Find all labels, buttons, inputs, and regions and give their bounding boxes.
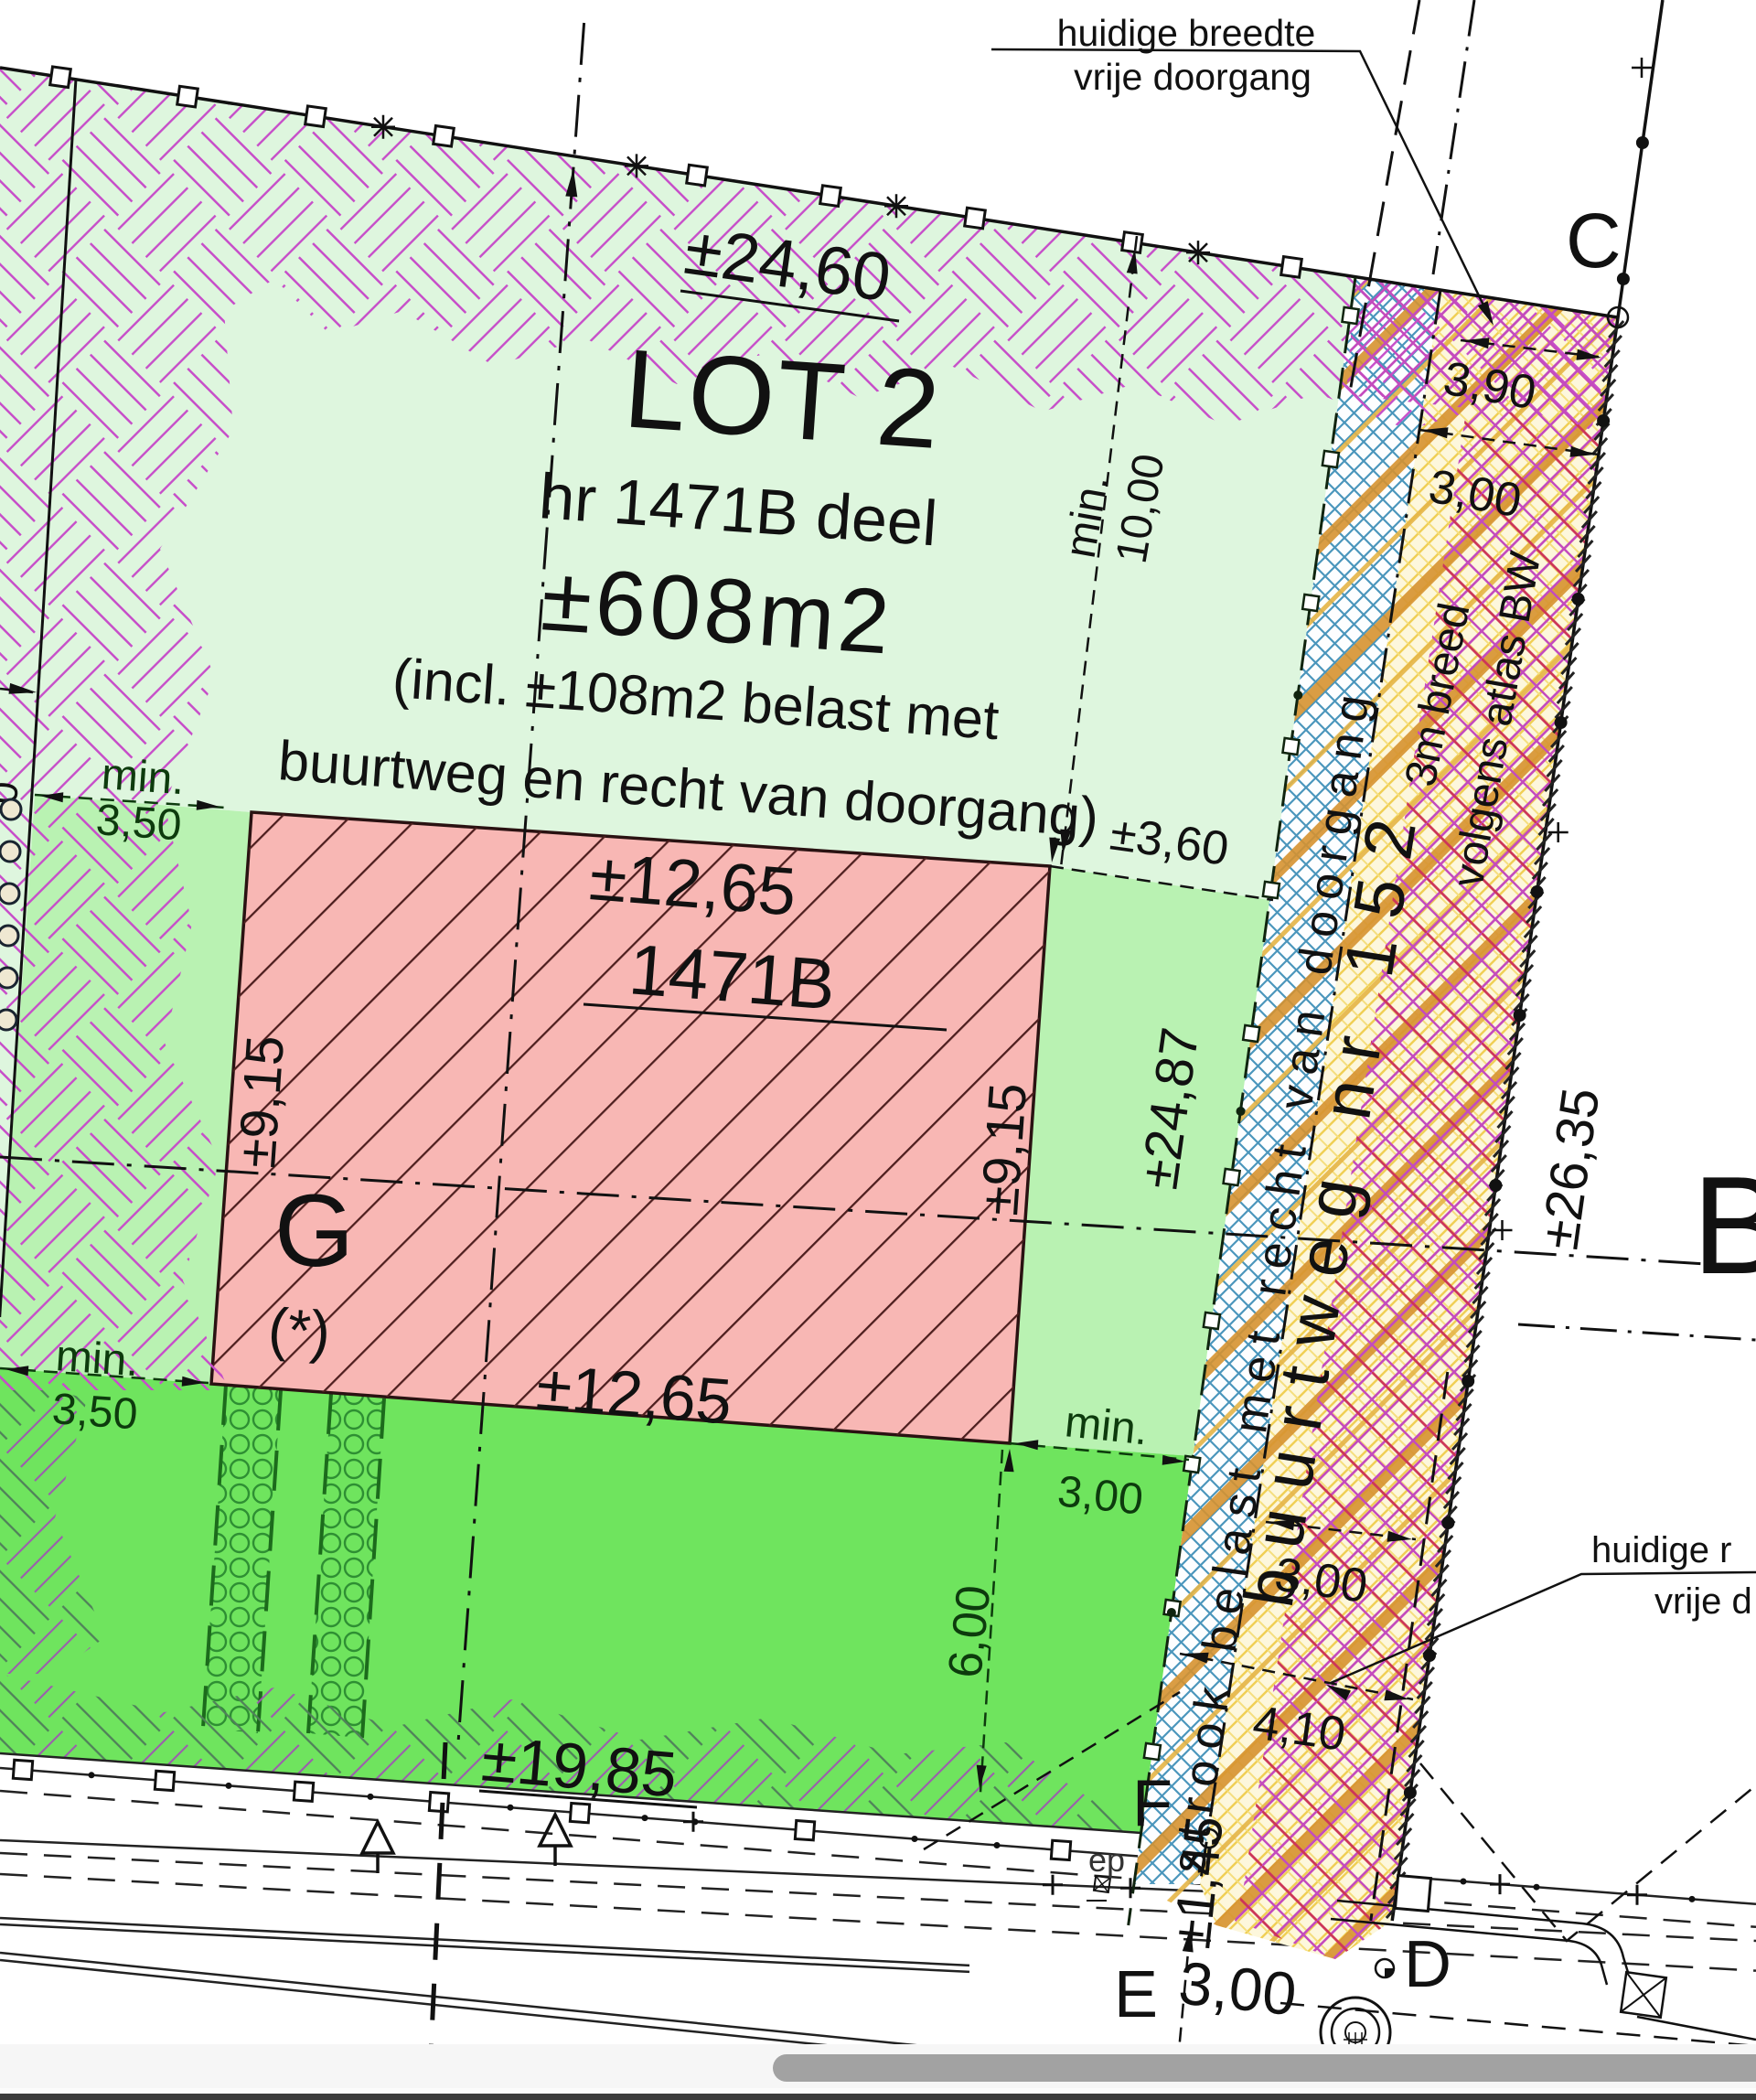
- svg-text:3,00: 3,00: [1176, 1948, 1301, 2028]
- svg-text:±12,65: ±12,65: [534, 1351, 734, 1438]
- svg-text:huidige breedte: huidige breedte: [1057, 12, 1316, 54]
- svg-text:vrije d: vrije d: [1654, 1581, 1752, 1622]
- svg-text:C: C: [1566, 198, 1622, 284]
- svg-text:ep: ep: [1088, 1841, 1125, 1879]
- svg-text:±9,15: ±9,15: [227, 1034, 295, 1170]
- svg-text:(*): (*): [266, 1295, 332, 1366]
- svg-text:E: E: [1114, 1958, 1158, 2031]
- svg-text:vrije doorgang: vrije doorgang: [1074, 56, 1312, 98]
- svg-text:min.: min.: [1063, 1398, 1151, 1454]
- svg-text:LOT 2: LOT 2: [620, 326, 945, 472]
- svg-text:F: F: [1132, 1767, 1172, 1840]
- svg-text:±9,15: ±9,15: [969, 1081, 1038, 1217]
- svg-text:B: B: [1692, 1148, 1756, 1303]
- svg-text:3,50: 3,50: [94, 796, 183, 850]
- svg-text:6,00: 6,00: [938, 1583, 1001, 1681]
- svg-text:D: D: [1404, 1928, 1451, 2001]
- svg-text:min.: min.: [54, 1332, 140, 1386]
- svg-text:±12,65: ±12,65: [587, 838, 799, 929]
- svg-text:huidige r: huidige r: [1591, 1530, 1731, 1570]
- svg-text:3,00: 3,00: [1055, 1467, 1145, 1524]
- svg-text:G: G: [274, 1173, 354, 1288]
- svg-text:3,50: 3,50: [50, 1385, 139, 1439]
